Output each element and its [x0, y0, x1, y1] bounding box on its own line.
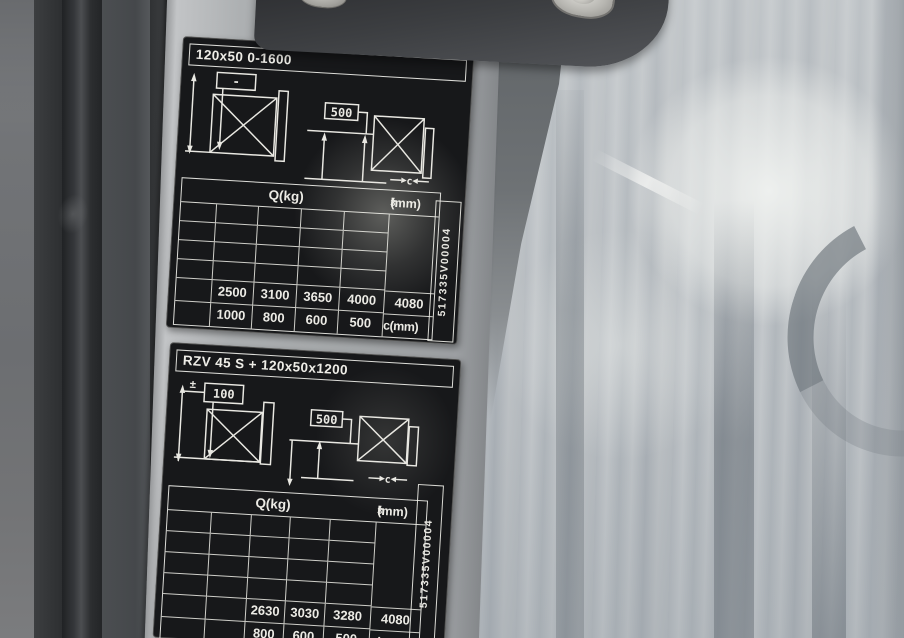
wall-shadow-stripe [556, 90, 584, 638]
c-dim-label: c [406, 176, 413, 187]
table-cell [328, 541, 375, 565]
load-diagram-graphic: - 500 c [182, 65, 448, 192]
table-cell [167, 510, 212, 534]
load-center-label: 500 [330, 105, 352, 120]
table-cell [180, 202, 217, 223]
table-cell: 2500 [211, 280, 255, 306]
table-cell [212, 261, 256, 283]
table-cell [256, 245, 300, 267]
table-cell: 500 [323, 627, 370, 638]
capacity-plate-upper: 120x50 0-1600 [166, 36, 475, 345]
serial-number: 517335V00004 [436, 227, 453, 317]
capacity-plate-lower: RZV 45 S + 120x50x1200 [152, 342, 461, 638]
wall-right-edge-shade [872, 0, 904, 638]
table-cell: 3280 [324, 604, 371, 630]
table-cell: 4000 [339, 288, 385, 314]
table-body: 263030303280800600500 4080 c(mm) [160, 510, 425, 638]
door-frame-groove [34, 0, 62, 638]
table-cell [248, 557, 289, 580]
table-cell [207, 576, 248, 599]
table-cell [299, 247, 343, 269]
table-cell [178, 240, 215, 261]
plus-minus-label: ± [189, 378, 197, 391]
table-cell [211, 513, 252, 536]
table-cell [162, 594, 207, 620]
load-diagram-graphic: ± 100 500 c [169, 371, 435, 500]
table-cell [208, 555, 249, 578]
table-cell [257, 226, 301, 248]
table-body: 25003100365040001000800600500 4080 c(mm) [174, 202, 439, 339]
table-cell [290, 517, 331, 540]
wall-shadow-stripe [714, 200, 754, 638]
table-cell [298, 266, 342, 288]
table-cell [205, 597, 246, 622]
table-cell [329, 520, 376, 544]
h-unit: (mm) [377, 499, 409, 525]
table-cell: 3100 [253, 283, 297, 308]
table-cell [250, 515, 291, 538]
table-cell [246, 578, 287, 601]
table-cell: 600 [295, 308, 339, 334]
c-unit-cell: c(mm) [383, 313, 433, 339]
table-cell [326, 583, 373, 607]
table-cell: 2630 [245, 599, 286, 624]
table-cell [163, 573, 208, 597]
table-cell: 1000 [209, 303, 253, 329]
door-frame-face [102, 0, 150, 638]
height-value-cell: 4080 [384, 290, 434, 316]
c-dim-label: c [384, 474, 391, 485]
fork-height-label: - [232, 74, 240, 88]
table-cell [287, 559, 328, 582]
table-cell [286, 580, 327, 603]
table-cell [300, 228, 344, 250]
table-cell [258, 207, 302, 229]
table-cell: 3650 [296, 285, 340, 311]
table-cell [342, 250, 388, 272]
table-grid: 25003100365040001000800600500 [174, 202, 390, 336]
table-cell [249, 536, 290, 559]
table-cell [177, 259, 214, 280]
table-cell [209, 534, 250, 557]
table-cell [255, 264, 299, 286]
table-cell [327, 562, 374, 586]
table-grid: 263030303280800600500 [160, 510, 376, 638]
serial-number: 517335V00004 [418, 519, 435, 609]
bolt-head [568, 0, 597, 6]
table-cell: 800 [244, 622, 285, 638]
table-cell [166, 531, 211, 555]
table-cell [160, 617, 205, 638]
wall-shadow-stripe [812, 280, 846, 638]
rubber-seal [62, 0, 102, 638]
table-cell: 600 [283, 624, 324, 638]
table-cell [164, 552, 209, 576]
table-cell [215, 204, 259, 226]
capacity-table: Q(kg) h3(mm) 263030303280800600500 4080 … [159, 485, 428, 638]
table-cell [179, 221, 216, 242]
h3-header: h3(mm) [390, 191, 440, 217]
table-cell [175, 278, 212, 303]
table-cell [213, 242, 257, 264]
table-cell: 3030 [285, 601, 326, 626]
table-cell [343, 231, 389, 253]
fork-height-label: 100 [213, 386, 235, 401]
h-unit: (mm) [390, 191, 422, 217]
capacity-diagram: - 500 c [182, 65, 466, 193]
table-cell [289, 538, 330, 561]
table-cell [174, 301, 211, 326]
table-cell [301, 209, 345, 231]
table-cell [214, 223, 258, 245]
table-cell: 800 [252, 306, 296, 331]
photo-scene: 120x50 0-1600 [0, 0, 904, 638]
capacity-diagram: ± 100 500 c [169, 371, 453, 501]
capacity-table: Q(kg) h3(mm) 250031003650400010008006005… [173, 177, 441, 340]
load-center-label: 500 [315, 412, 337, 427]
table-cell: 500 [338, 311, 384, 337]
door-frame-corner-shade [0, 0, 34, 118]
wall-reflection-soft [500, 230, 740, 460]
table-cell [204, 620, 245, 638]
